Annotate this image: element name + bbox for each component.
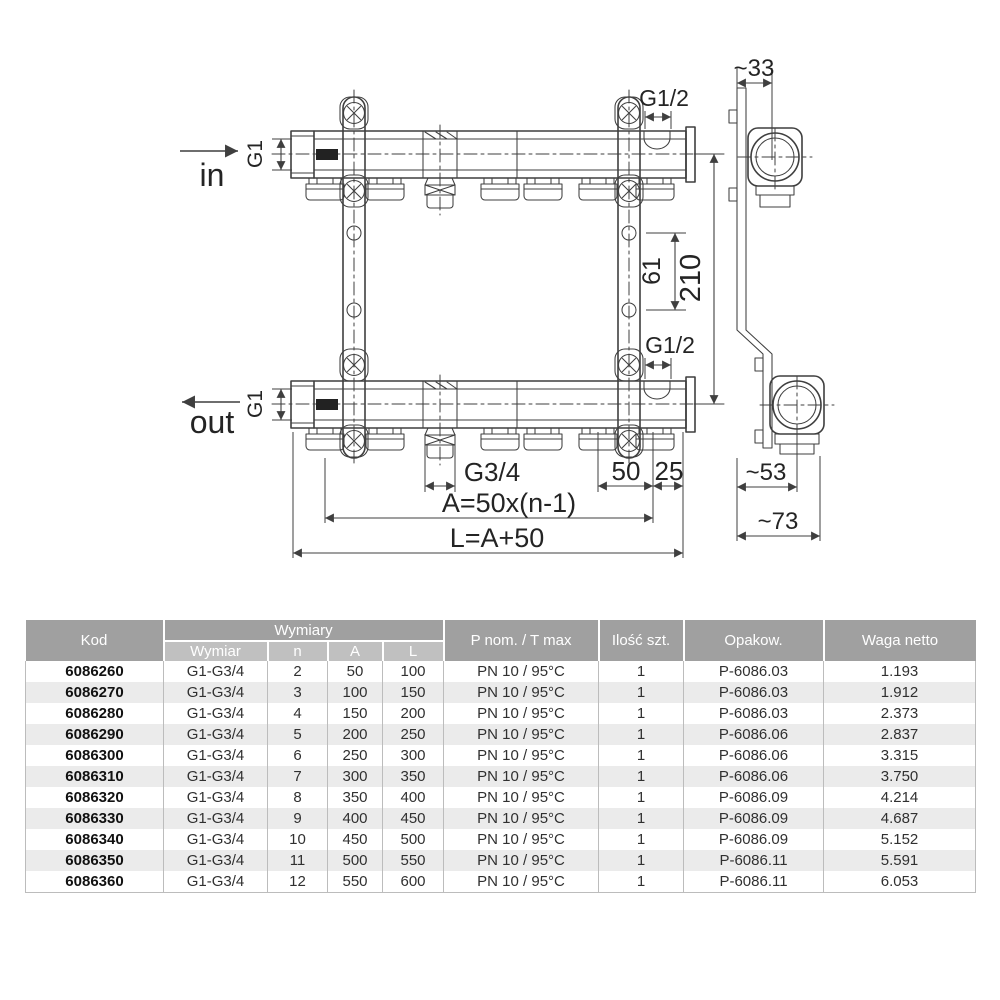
- cell-n: 12: [268, 871, 328, 893]
- cell-wymiar: G1-G3/4: [164, 871, 268, 893]
- cell-waga: 3.750: [824, 766, 976, 787]
- cell-waga: 6.053: [824, 871, 976, 893]
- cell-opakow: P-6086.06: [684, 766, 824, 787]
- cell-wymiar: G1-G3/4: [164, 703, 268, 724]
- cell-l: 150: [383, 682, 444, 703]
- cell-kod: 6086260: [26, 661, 164, 682]
- table-row: 6086360 G1-G3/4 12 550 600 PN 10 / 95°C …: [26, 871, 976, 893]
- cell-l: 500: [383, 829, 444, 850]
- front-view-bottom-manifold: [272, 375, 724, 465]
- cell-pnom: PN 10 / 95°C: [444, 808, 599, 829]
- table-row: 6086270 G1-G3/4 3 100 150 PN 10 / 95°C 1…: [26, 682, 976, 703]
- col-header-a: A: [328, 641, 383, 661]
- manifold-technical-drawing: in out G1 G1 G1/2 G1/2 61 210 G3/4 50 25…: [0, 0, 1000, 610]
- col-header-l: L: [383, 641, 444, 661]
- cell-ilosc: 1: [599, 829, 684, 850]
- col-header-kod: Kod: [26, 620, 164, 661]
- cell-ilosc: 1: [599, 787, 684, 808]
- cell-pnom: PN 10 / 95°C: [444, 724, 599, 745]
- cell-n: 5: [268, 724, 328, 745]
- cell-n: 3: [268, 682, 328, 703]
- cell-a: 350: [328, 787, 383, 808]
- cell-opakow: P-6086.03: [684, 661, 824, 682]
- cell-pnom: PN 10 / 95°C: [444, 829, 599, 850]
- cell-pnom: PN 10 / 95°C: [444, 766, 599, 787]
- table-row: 6086310 G1-G3/4 7 300 350 PN 10 / 95°C 1…: [26, 766, 976, 787]
- cell-kod: 6086270: [26, 682, 164, 703]
- cell-waga: 4.687: [824, 808, 976, 829]
- product-spec-table: Kod Wymiary P nom. / T max Ilość szt. Op…: [25, 620, 976, 893]
- cell-ilosc: 1: [599, 703, 684, 724]
- cell-ilosc: 1: [599, 808, 684, 829]
- label-g1-top: G1: [244, 140, 267, 168]
- cell-wymiar: G1-G3/4: [164, 724, 268, 745]
- cell-pnom: PN 10 / 95°C: [444, 850, 599, 871]
- cell-wymiar: G1-G3/4: [164, 661, 268, 682]
- cell-kod: 6086310: [26, 766, 164, 787]
- cell-ilosc: 1: [599, 745, 684, 766]
- cell-a: 250: [328, 745, 383, 766]
- table-body: 6086260 G1-G3/4 2 50 100 PN 10 / 95°C 1 …: [26, 661, 976, 893]
- cell-opakow: P-6086.09: [684, 808, 824, 829]
- label-dim-73: ~73: [758, 508, 799, 535]
- label-dim-l-formula: L=A+50: [450, 523, 545, 553]
- cell-n: 8: [268, 787, 328, 808]
- cell-ilosc: 1: [599, 682, 684, 703]
- table-row: 6086320 G1-G3/4 8 350 400 PN 10 / 95°C 1…: [26, 787, 976, 808]
- label-g12-top: G1/2: [639, 85, 689, 111]
- cell-l: 300: [383, 745, 444, 766]
- cell-a: 100: [328, 682, 383, 703]
- cell-n: 7: [268, 766, 328, 787]
- cell-a: 500: [328, 850, 383, 871]
- cell-wymiar: G1-G3/4: [164, 745, 268, 766]
- col-header-pnom: P nom. / T max: [444, 620, 599, 661]
- cell-kod: 6086330: [26, 808, 164, 829]
- label-dim-a-formula: A=50x(n-1): [442, 488, 576, 518]
- cell-l: 400: [383, 787, 444, 808]
- cell-wymiar: G1-G3/4: [164, 766, 268, 787]
- cell-opakow: P-6086.06: [684, 745, 824, 766]
- label-in: in: [200, 157, 225, 193]
- cell-pnom: PN 10 / 95°C: [444, 661, 599, 682]
- cell-n: 4: [268, 703, 328, 724]
- cell-kod: 6086340: [26, 829, 164, 850]
- cell-kod: 6086350: [26, 850, 164, 871]
- cell-n: 2: [268, 661, 328, 682]
- cell-pnom: PN 10 / 95°C: [444, 871, 599, 893]
- cell-pnom: PN 10 / 95°C: [444, 682, 599, 703]
- label-out: out: [190, 404, 235, 440]
- cell-opakow: P-6086.11: [684, 850, 824, 871]
- table-row: 6086260 G1-G3/4 2 50 100 PN 10 / 95°C 1 …: [26, 661, 976, 682]
- cell-a: 400: [328, 808, 383, 829]
- cell-waga: 1.912: [824, 682, 976, 703]
- cell-kod: 6086300: [26, 745, 164, 766]
- cell-a: 200: [328, 724, 383, 745]
- cell-n: 9: [268, 808, 328, 829]
- cell-pnom: PN 10 / 95°C: [444, 745, 599, 766]
- col-header-ilosc: Ilość szt.: [599, 620, 684, 661]
- cell-n: 10: [268, 829, 328, 850]
- cell-l: 450: [383, 808, 444, 829]
- cell-kod: 6086290: [26, 724, 164, 745]
- cell-wymiar: G1-G3/4: [164, 787, 268, 808]
- cell-waga: 2.837: [824, 724, 976, 745]
- col-header-wymiary-group: Wymiary: [164, 620, 444, 641]
- front-view-top-manifold: [272, 125, 724, 215]
- cell-l: 550: [383, 850, 444, 871]
- label-dim-61: 61: [638, 257, 666, 285]
- cell-wymiar: G1-G3/4: [164, 682, 268, 703]
- col-header-n: n: [268, 641, 328, 661]
- label-g12-bottom: G1/2: [645, 332, 695, 358]
- cell-a: 550: [328, 871, 383, 893]
- label-dim-25: 25: [655, 456, 684, 486]
- cell-a: 300: [328, 766, 383, 787]
- label-dim-210: 210: [675, 254, 707, 302]
- cell-opakow: P-6086.09: [684, 787, 824, 808]
- cell-waga: 1.193: [824, 661, 976, 682]
- cell-kod: 6086360: [26, 871, 164, 893]
- cell-waga: 5.152: [824, 829, 976, 850]
- label-dim-33: ~33: [734, 55, 775, 82]
- table-row: 6086350 G1-G3/4 11 500 550 PN 10 / 95°C …: [26, 850, 976, 871]
- cell-a: 150: [328, 703, 383, 724]
- cell-waga: 4.214: [824, 787, 976, 808]
- cell-ilosc: 1: [599, 724, 684, 745]
- label-dim-53: ~53: [746, 459, 787, 486]
- cell-kod: 6086320: [26, 787, 164, 808]
- table-row: 6086290 G1-G3/4 5 200 250 PN 10 / 95°C 1…: [26, 724, 976, 745]
- side-view: [729, 88, 834, 454]
- table-row: 6086340 G1-G3/4 10 450 500 PN 10 / 95°C …: [26, 829, 976, 850]
- label-g34: G3/4: [464, 457, 520, 487]
- cell-pnom: PN 10 / 95°C: [444, 703, 599, 724]
- cell-ilosc: 1: [599, 661, 684, 682]
- table-row: 6086300 G1-G3/4 6 250 300 PN 10 / 95°C 1…: [26, 745, 976, 766]
- cell-a: 450: [328, 829, 383, 850]
- col-header-wymiar: Wymiar: [164, 641, 268, 661]
- technical-drawing-svg: in out G1 G1 G1/2 G1/2 61 210 G3/4 50 25…: [0, 0, 1000, 610]
- cell-wymiar: G1-G3/4: [164, 829, 268, 850]
- cell-ilosc: 1: [599, 766, 684, 787]
- cell-l: 250: [383, 724, 444, 745]
- cell-opakow: P-6086.11: [684, 871, 824, 893]
- cell-wymiar: G1-G3/4: [164, 808, 268, 829]
- cell-opakow: P-6086.03: [684, 682, 824, 703]
- cell-waga: 3.315: [824, 745, 976, 766]
- cell-wymiar: G1-G3/4: [164, 850, 268, 871]
- table-header: Kod Wymiary P nom. / T max Ilość szt. Op…: [26, 620, 976, 661]
- cell-l: 350: [383, 766, 444, 787]
- cell-opakow: P-6086.03: [684, 703, 824, 724]
- col-header-opakow: Opakow.: [684, 620, 824, 661]
- col-header-waga: Waga netto: [824, 620, 976, 661]
- mounting-bracket-left: [340, 90, 368, 465]
- cell-pnom: PN 10 / 95°C: [444, 787, 599, 808]
- table-row: 6086280 G1-G3/4 4 150 200 PN 10 / 95°C 1…: [26, 703, 976, 724]
- cell-l: 100: [383, 661, 444, 682]
- table-row: 6086330 G1-G3/4 9 400 450 PN 10 / 95°C 1…: [26, 808, 976, 829]
- cell-ilosc: 1: [599, 850, 684, 871]
- cell-ilosc: 1: [599, 871, 684, 893]
- cell-n: 11: [268, 850, 328, 871]
- cell-kod: 6086280: [26, 703, 164, 724]
- cell-l: 600: [383, 871, 444, 893]
- cell-n: 6: [268, 745, 328, 766]
- cell-opakow: P-6086.06: [684, 724, 824, 745]
- cell-opakow: P-6086.09: [684, 829, 824, 850]
- cell-waga: 2.373: [824, 703, 976, 724]
- label-g1-bottom: G1: [244, 390, 267, 418]
- cell-a: 50: [328, 661, 383, 682]
- cell-l: 200: [383, 703, 444, 724]
- label-dim-50: 50: [612, 456, 641, 486]
- cell-waga: 5.591: [824, 850, 976, 871]
